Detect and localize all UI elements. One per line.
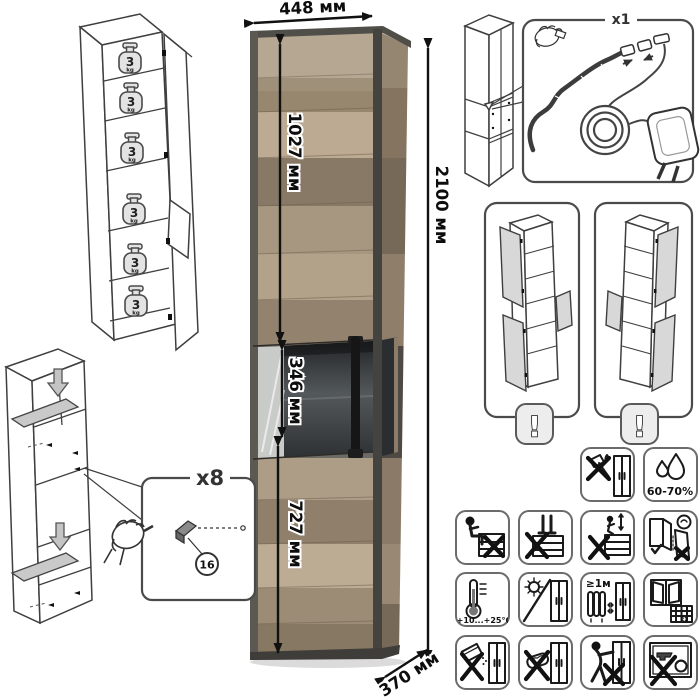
- led-kit-quantity: x1: [612, 12, 631, 28]
- temperature-range-icon: +10...+25°C: [455, 572, 510, 627]
- heater-distance-icon: ≥1м: [580, 572, 635, 627]
- doors-adjustment-icon: [643, 510, 698, 565]
- attention-icon: !: [516, 404, 553, 444]
- grid-spacer: [518, 447, 573, 502]
- grid-spacer: [455, 447, 510, 502]
- no-heavy-objects-icon: [643, 635, 698, 690]
- fastener-quantity: x8: [196, 466, 224, 490]
- led-kit-panel: x1: [455, 0, 700, 195]
- svg-text:kg: kg: [130, 219, 138, 225]
- mini-cabinet-lineart: [465, 15, 523, 186]
- svg-text:≥1м: ≥1м: [586, 578, 611, 590]
- assembly-drawing: x8 16: [0, 335, 265, 645]
- no-standing-icon: [518, 510, 573, 565]
- svg-text:!: !: [633, 410, 646, 443]
- svg-text:kg: kg: [131, 269, 139, 275]
- svg-text:kg: kg: [126, 68, 134, 74]
- glass-niche-dimension: 346 мм: [286, 357, 305, 424]
- assembly-cabinet-lineart: [6, 349, 142, 623]
- right-trim: [373, 29, 382, 658]
- attention-icon: !: [621, 404, 658, 444]
- no-sitting-icon: [455, 510, 510, 565]
- humidity-icon: 60-70%: [643, 447, 698, 502]
- upper-door-dimension: 1027 мм: [285, 113, 304, 192]
- fastener-detail-box: [142, 478, 255, 600]
- svg-text:kg: kg: [132, 311, 140, 317]
- svg-text:60-70%: 60-70%: [647, 485, 693, 498]
- care-icons-grid: 60-70%: [455, 447, 698, 690]
- svg-text:+10...+25°C: +10...+25°C: [458, 616, 508, 625]
- width-dimension: 448 мм: [279, 0, 347, 19]
- svg-text:kg: kg: [128, 158, 136, 164]
- ventilation-icon: 21: [643, 572, 698, 627]
- height-dimension: 2100 мм: [432, 166, 451, 245]
- cabinet-render: 448 мм 2100 мм 1027 мм 346 мм 727 мм 370…: [240, 0, 460, 700]
- no-climbing-icon: [580, 510, 635, 565]
- svg-text:!: !: [528, 410, 541, 443]
- no-wet-cleaning-icon: [518, 635, 573, 690]
- svg-text:16: 16: [199, 559, 215, 572]
- no-dragging-icon: [580, 635, 635, 690]
- no-direct-sunlight-icon: [518, 572, 573, 627]
- no-abrasive-cleaners-icon: [455, 635, 510, 690]
- door-options-panel: ! !: [480, 195, 700, 450]
- svg-text:kg: kg: [127, 108, 135, 114]
- lower-door-dimension: 727 мм: [286, 500, 305, 567]
- svg-text:21: 21: [681, 617, 688, 623]
- furniture-spec-sheet: 3 kg 3 kg 3 kg 3 kg: [0, 0, 700, 700]
- no-sharp-objects-icon: [580, 447, 635, 502]
- shelf-load-drawing: 3 kg 3 kg 3 kg 3 kg: [0, 0, 235, 352]
